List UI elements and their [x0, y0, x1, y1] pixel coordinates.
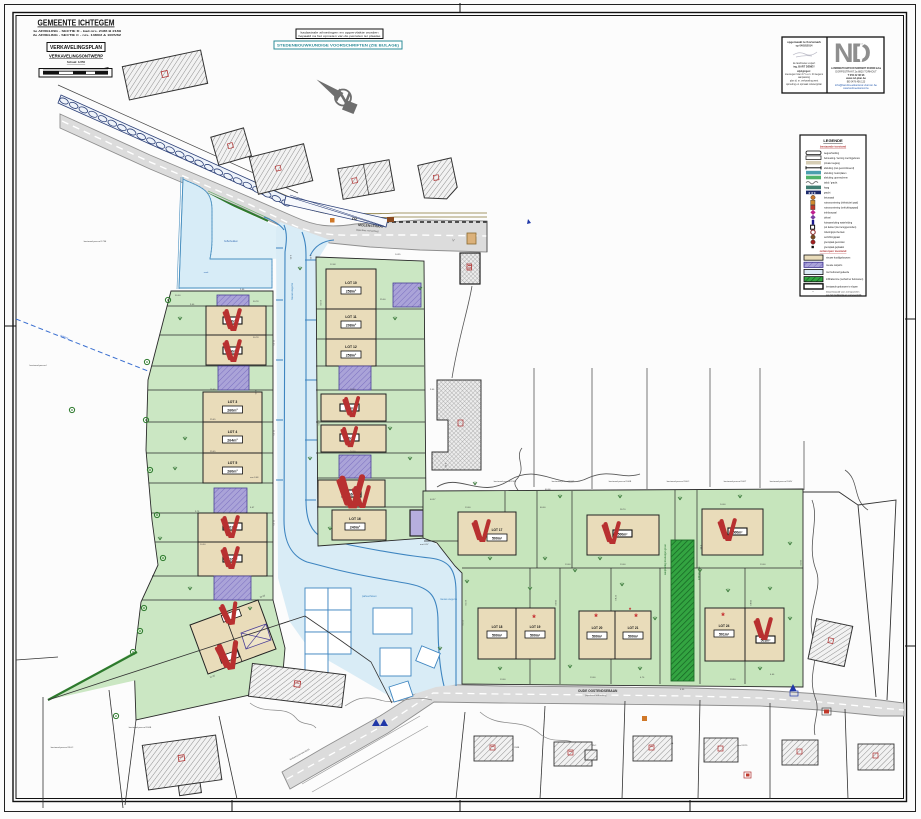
svg-text:LOT 4: LOT 4 [228, 430, 238, 434]
svg-text:niet bebouwd gedeelte: niet bebouwd gedeelte [826, 271, 850, 274]
svg-text:op 04/02/2014: op 04/02/2014 [796, 44, 813, 48]
svg-text:bebouwing / woning met bijgebo: bebouwing / woning met bijgebouw [824, 157, 860, 160]
svg-text:nieuwe hoofdgebouwen: nieuwe hoofdgebouwen [826, 258, 851, 260]
svg-text:verlichtingspaal: verlichtingspaal [824, 236, 840, 239]
svg-text:25.45: 25.45 [350, 389, 356, 391]
svg-text:25.45: 25.45 [210, 389, 216, 391]
svg-text:30.78: 30.78 [253, 301, 259, 303]
svg-text:haag: haag [824, 188, 830, 190]
svg-text:208m²: 208m² [346, 323, 357, 327]
svg-text:nieuwe wegenis: nieuwe wegenis [440, 598, 458, 601]
svg-text:13.50: 13.50 [730, 679, 736, 681]
svg-text:258m²: 258m² [346, 289, 357, 293]
svg-text:Schaal: 1/250: Schaal: 1/250 [67, 60, 86, 64]
svg-text:BE 0478.456.123: BE 0478.456.123 [847, 81, 866, 84]
svg-text:lokaal bepaald voor zonnepanel: lokaal bepaald voor zonnepanelen [826, 291, 860, 294]
svg-text:betonpaal: betonpaal [824, 197, 835, 200]
svg-text:ontworpen toestand: ontworpen toestand [820, 249, 847, 253]
svg-text:60.00: 60.00 [540, 507, 546, 509]
svg-text:500m²: 500m² [492, 536, 503, 540]
svg-text:500m²: 500m² [492, 633, 503, 637]
svg-text:LANDMEETKANTOOR NORBERT DUMON: LANDMEETKANTOOR NORBERT DUMON bvba [831, 67, 882, 70]
svg-text:nieuwe carports: nieuwe carports [826, 264, 843, 267]
svg-text:13.00: 13.00 [565, 564, 571, 566]
svg-text:ND: ND [834, 38, 870, 68]
svg-text:bestaand perceel 160C: bestaand perceel 160C [667, 480, 690, 483]
svg-text:37.43: 37.43 [614, 595, 616, 601]
svg-text:LOT 12: LOT 12 [345, 345, 357, 349]
svg-text:deksel: deksel [824, 217, 831, 219]
svg-text:info@landmeetkantoor-dumon.be: info@landmeetkantoor-dumon.be [835, 84, 878, 87]
svg-text:38.00: 38.00 [799, 560, 801, 566]
svg-text:VERKAVELINGSONTWERP: VERKAVELINGSONTWERP [49, 54, 103, 59]
svg-text:toevoegen loten 17 t.e.m. 24 w: toevoegen loten 17 t.e.m. 24 wegens [785, 73, 824, 76]
svg-text:25.00: 25.00 [380, 299, 386, 301]
svg-text:bestaand perceel 510C: bestaand perceel 510C [51, 746, 74, 749]
svg-text:*: * [812, 290, 813, 294]
svg-text:11.00: 11.00 [272, 430, 274, 436]
svg-text:bestaande gebouwen te slopen: bestaande gebouwen te slopen [826, 285, 859, 288]
svg-text:grenspaal gevonden: grenspaal gevonden [824, 241, 846, 244]
svg-text:telefoonpaal: telefoonpaal [824, 211, 837, 214]
svg-text:26.70: 26.70 [620, 509, 626, 511]
svg-text:*: * [532, 613, 536, 623]
svg-text:bestaand perceel 160B: bestaand perceel 160B [609, 480, 632, 483]
svg-text:12.00: 12.00 [464, 600, 466, 606]
svg-text:11.00: 11.00 [317, 420, 319, 426]
svg-text:500m²: 500m² [530, 633, 541, 637]
svg-text:500m²: 500m² [628, 634, 639, 638]
svg-text:25.45: 25.45 [210, 419, 216, 421]
svg-text:bestaande toestand: bestaande toestand [820, 145, 847, 149]
svg-text:(openbare verharding): (openbare verharding) [585, 694, 607, 697]
svg-text:32.00: 32.00 [461, 620, 463, 626]
svg-text:wijzigingen:: wijzigingen: [797, 70, 811, 73]
svg-text:bufferbekken: bufferbekken [224, 240, 238, 243]
svg-text:LOT 18: LOT 18 [492, 625, 503, 629]
svg-text:afsluiting (niet gecombineerd): afsluiting (niet gecombineerd) [824, 167, 854, 170]
svg-text:met 4.57: met 4.57 [420, 543, 429, 546]
svg-text:aanpassing: aanpassing [798, 77, 810, 79]
svg-text:aanplanting streekeigen groen: aanplanting streekeigen groen [664, 543, 667, 575]
svg-text:14.35: 14.35 [395, 254, 401, 256]
svg-text:38.60: 38.60 [554, 600, 556, 606]
svg-text:60.06: 60.06 [545, 489, 551, 491]
svg-text:parkeerhaven: parkeerhaven [362, 595, 377, 598]
svg-text:*: * [634, 612, 638, 622]
svg-text:opgemaakt te Kortemark: opgemaakt te Kortemark [787, 41, 822, 44]
svg-text:13.00: 13.00 [590, 677, 596, 679]
svg-text:11.00: 11.00 [272, 340, 274, 346]
svg-text:bepaald na het opmeten van de: bepaald na het opmeten van de percelen t… [299, 34, 382, 38]
svg-text:LOT 3: LOT 3 [228, 400, 238, 404]
svg-text:*: * [594, 612, 598, 622]
svg-text:bestaand perceel 173E: bestaand perceel 173E [84, 240, 107, 243]
svg-text:bestaand perceel: bestaand perceel [30, 364, 47, 367]
svg-text:13.00: 13.00 [620, 564, 626, 566]
svg-text:talud / gracht: talud / gracht [824, 182, 838, 185]
svg-text:500m²: 500m² [618, 532, 629, 536]
svg-text:258m²: 258m² [346, 353, 357, 357]
svg-text:501m²: 501m² [719, 632, 730, 636]
svg-text:LEGENDE: LEGENDE [823, 138, 843, 143]
svg-text:10.50: 10.50 [200, 544, 206, 546]
svg-text:bestaand perceel 166V: bestaand perceel 166V [770, 480, 793, 483]
svg-text:30.78: 30.78 [253, 337, 259, 339]
svg-text:VERKAVELINGSPLAN: VERKAVELINGSPLAN [50, 45, 102, 51]
svg-text:rioleringsput bezoek: rioleringsput bezoek [824, 231, 845, 234]
svg-text:1e AFDELING - SECTIE D - kad.n: 1e AFDELING - SECTIE D - kad.nrs. 2186 B… [33, 29, 122, 33]
svg-text:2e AFDELING - SECTIE C - nrs.: 2e AFDELING - SECTIE C - nrs. 1380/2 & 1… [33, 33, 122, 37]
svg-text:nutsvoorziening (elektriciteit: nutsvoorziening (elektriciteit paal) [824, 202, 858, 205]
svg-text:44.57: 44.57 [430, 499, 436, 501]
svg-text:bestaand perceel 510B: bestaand perceel 510B [129, 726, 152, 729]
svg-text:OUDE OOSTENDSEBAAN: OUDE OOSTENDSEBAAN [578, 689, 618, 693]
svg-text:infiltratiezone (verbod ter be: infiltratiezone (verbod ter bebouwen) [826, 278, 864, 281]
svg-text:500m²: 500m² [733, 530, 744, 534]
svg-text:260m²: 260m² [227, 408, 238, 412]
svg-text:LOT 20: LOT 20 [592, 626, 603, 630]
svg-text:13.00: 13.00 [760, 564, 766, 566]
svg-text:wadi: wadi [204, 272, 209, 274]
svg-text:*: * [721, 611, 725, 621]
svg-text:260m²: 260m² [227, 469, 238, 473]
svg-text:240m²: 240m² [350, 525, 361, 529]
svg-text:nutsvoorziening (verlichtingsp: nutsvoorziening (verlichtingspaal) [824, 206, 858, 209]
svg-text:25.45: 25.45 [210, 451, 216, 453]
svg-text:put deksel (niet teruggevonden: put deksel (niet teruggevonden) [824, 226, 857, 229]
svg-text:LOT 11: LOT 11 [345, 315, 356, 319]
svg-text:kadastrale afmetingen en opper: kadastrale afmetingen en oppervlakte wor… [301, 31, 380, 35]
svg-text:LOT 17: LOT 17 [492, 528, 503, 532]
svg-text:10.00: 10.00 [319, 300, 321, 306]
svg-text:12.08: 12.08 [330, 264, 336, 266]
svg-text:★★★: ★★★ [808, 191, 816, 195]
svg-text:13.00: 13.00 [465, 507, 471, 509]
svg-text:LOT 10: LOT 10 [345, 281, 357, 285]
svg-text:500m²: 500m² [592, 634, 603, 638]
svg-text:private toegang: private toegang [824, 162, 841, 165]
svg-text:plan id. nr. verkaveling west: plan id. nr. verkaveling west [790, 79, 819, 82]
svg-text:14.00: 14.00 [720, 504, 726, 506]
svg-text:264m²: 264m² [227, 438, 238, 442]
svg-text:LOT 5: LOT 5 [228, 461, 238, 465]
svg-text:afsluiting: betonplaten: afsluiting: betonplaten [824, 172, 847, 175]
svg-text:38.43: 38.43 [749, 600, 751, 606]
svg-text:LOT 16: LOT 16 [349, 517, 361, 521]
svg-text:LOT 21: LOT 21 [628, 626, 639, 630]
svg-text:30.00: 30.00 [175, 295, 181, 297]
svg-text:ing. BART DEMEY: ing. BART DEMEY [793, 65, 815, 68]
svg-text:GEMEENTE ICHTEGEM: GEMEENTE ICHTEGEM [38, 19, 115, 28]
svg-text:bestaand perceel 166T: bestaand perceel 166T [724, 480, 747, 483]
svg-text:LOT 19: LOT 19 [530, 625, 541, 629]
svg-text:opmeting en opmaak ontwerpplan: opmeting en opmaak ontwerpplan [786, 83, 823, 86]
svg-text:wegverharding: wegverharding [824, 152, 840, 155]
svg-text:infiltratiezone: infiltratiezone [698, 566, 701, 580]
svg-text:STEDENBOUWKUNDIGE VOORSCHRIFTE: STEDENBOUWKUNDIGE VOORSCHRIFTEN (ZIE BIJ… [277, 43, 400, 48]
svg-text:van 3.48: van 3.48 [250, 477, 259, 479]
svg-text:van het hoofdgebouw voorwaarde: van het hoofdgebouw voorwaardelijk [826, 293, 862, 296]
svg-text:D2: D2 [352, 216, 358, 221]
svg-text:24.00: 24.00 [350, 451, 356, 453]
svg-text:11.00: 11.00 [272, 520, 274, 526]
svg-text:www.landmeetkantoor.be: www.landmeetkantoor.be [843, 87, 869, 90]
svg-text:afsluiting: groenscherm: afsluiting: groenscherm [824, 177, 848, 180]
svg-text:LOT 24: LOT 24 [719, 624, 730, 628]
svg-text:gracht: gracht [824, 192, 831, 195]
svg-text:www.nd-plan.be: www.nd-plan.be [846, 76, 866, 80]
svg-text:13.00: 13.00 [500, 679, 506, 681]
svg-text:nieuwe wegenis: nieuwe wegenis [291, 282, 294, 300]
svg-text:huisaansluiting waterleiding: huisaansluiting waterleiding [824, 221, 853, 224]
